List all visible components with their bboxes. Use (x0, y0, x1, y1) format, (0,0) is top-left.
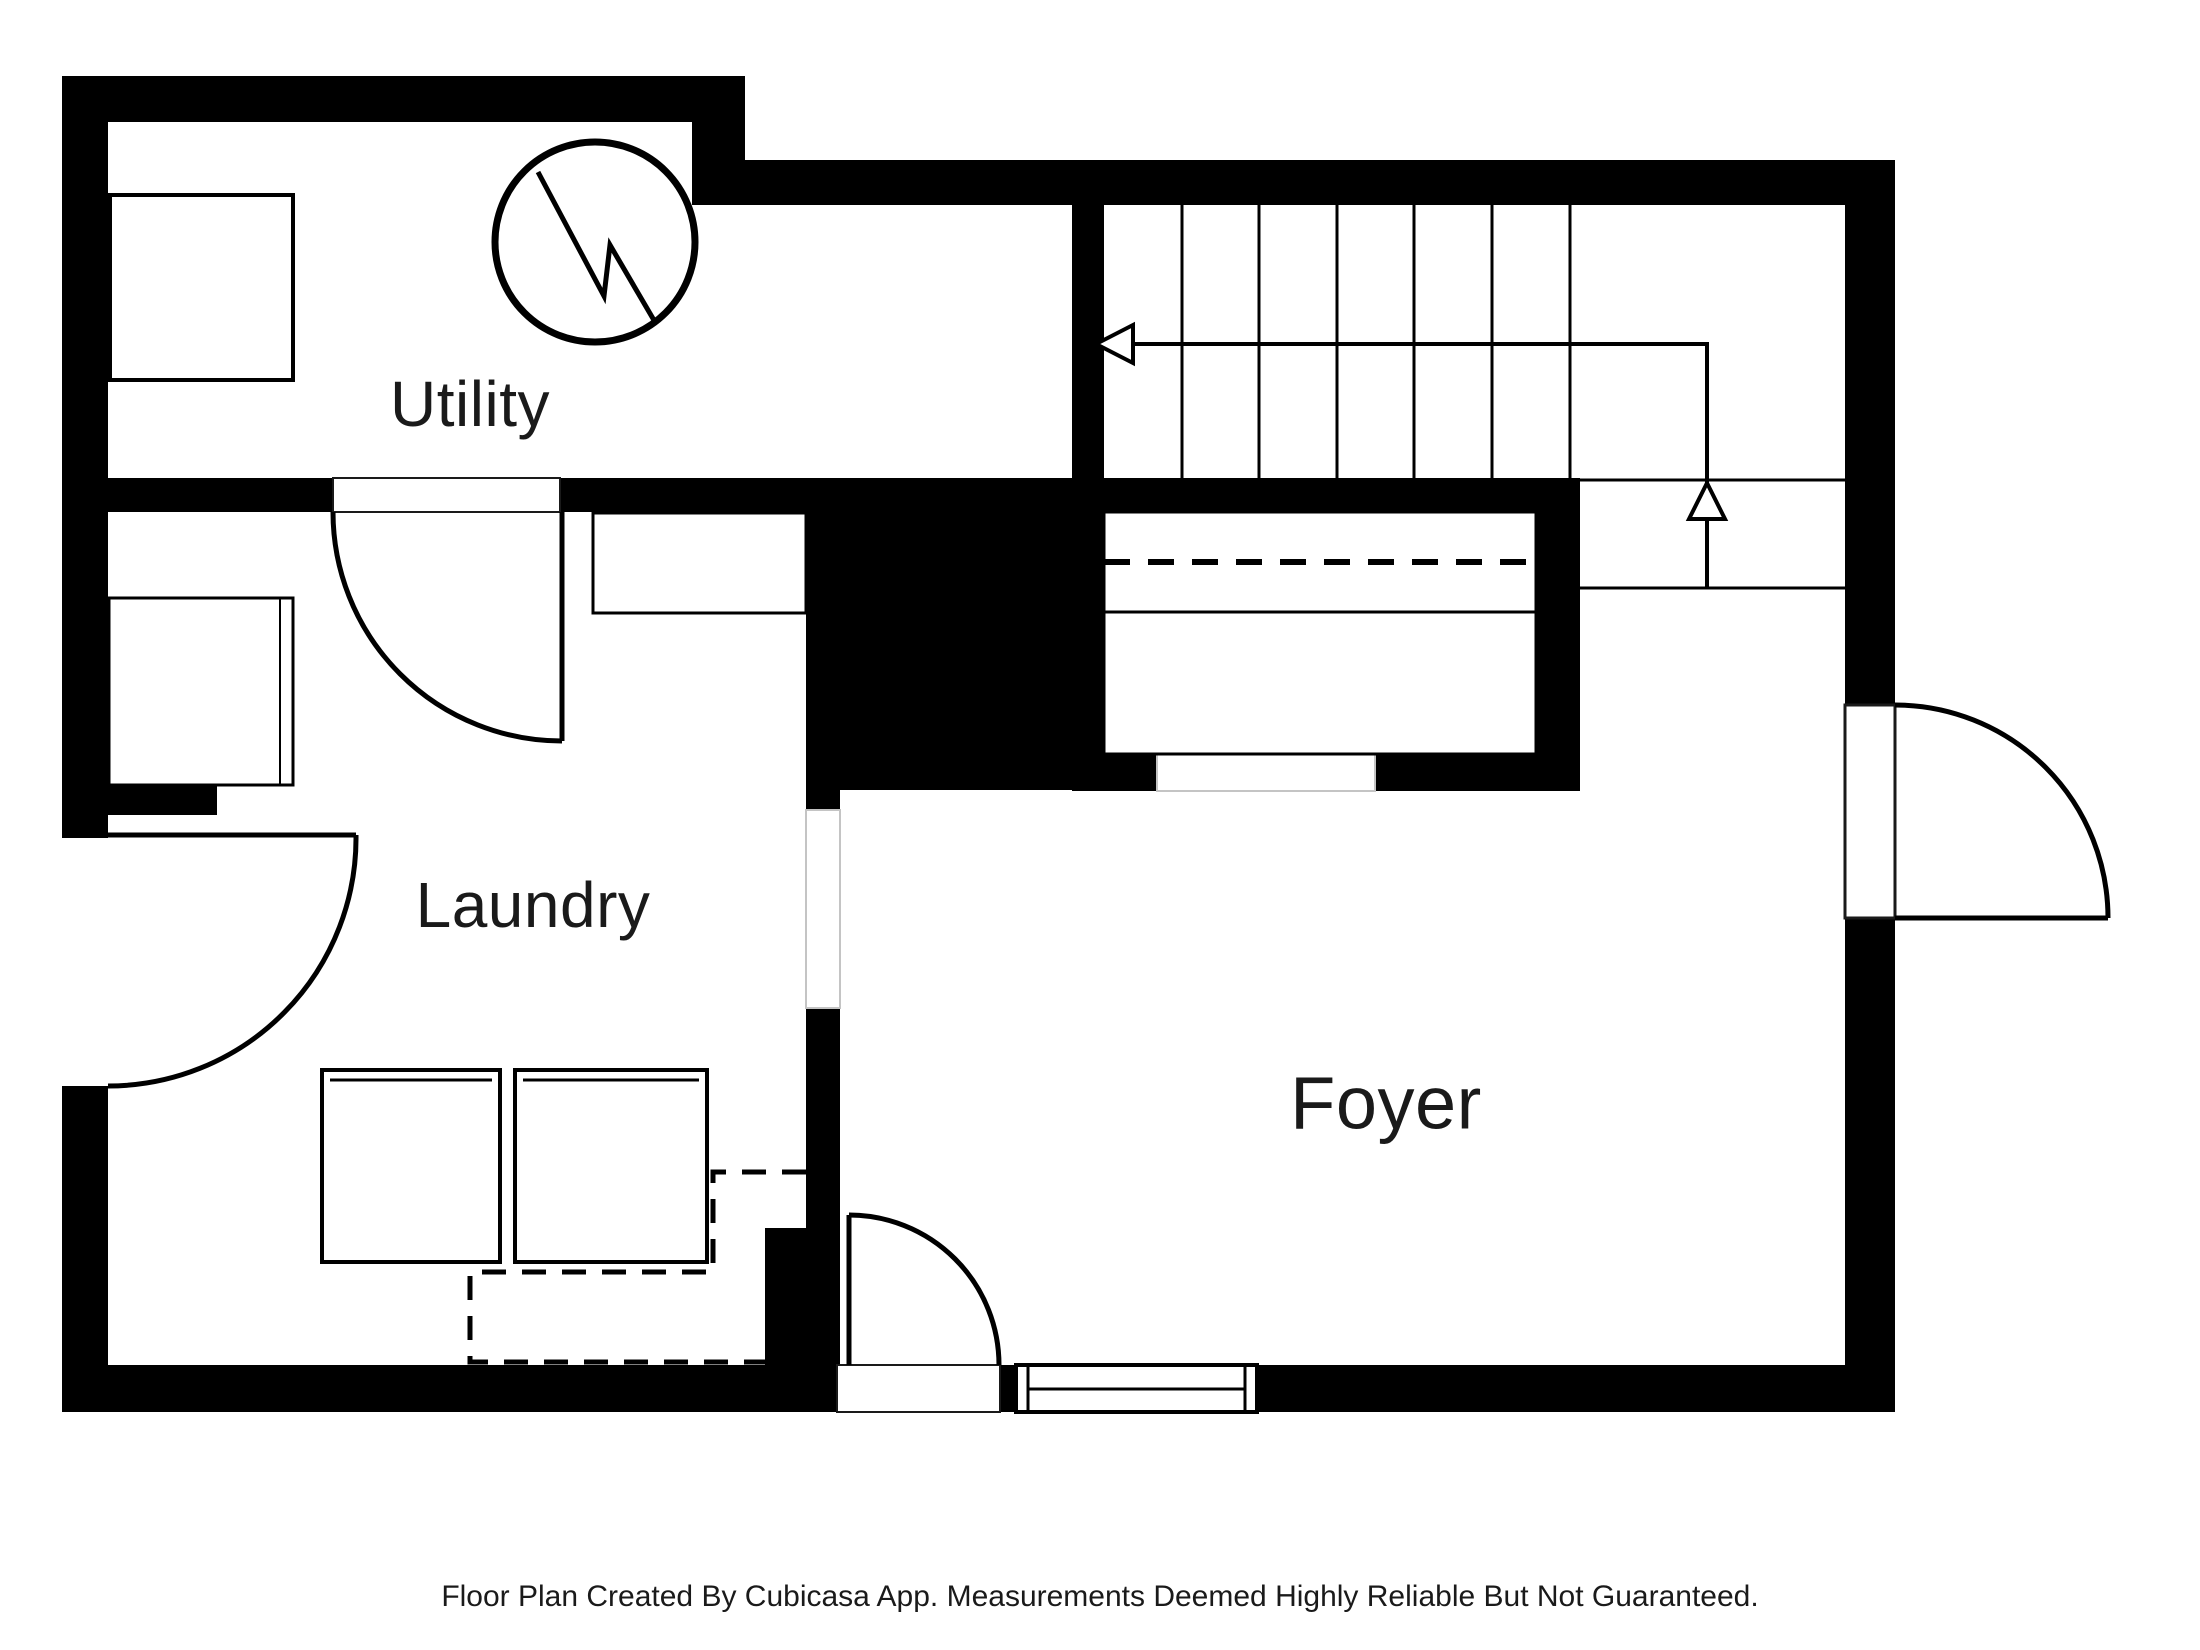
closet-opening (1157, 754, 1375, 791)
wall-bottom-left (62, 1365, 837, 1412)
laundry-cubby (593, 513, 806, 613)
door-leaf (1845, 705, 1895, 918)
wall-hall-stairs (1072, 205, 1104, 512)
door-swing-arc (108, 835, 356, 1086)
door-swing-arc (849, 1215, 999, 1365)
front-door-opening (837, 1365, 1000, 1412)
floor-plan: Utility Laundry Foyer Floor Plan Created… (0, 0, 2200, 1650)
wall-left-upper (62, 76, 108, 838)
laundry-door-opening (62, 838, 108, 1086)
door-swing-arc (1895, 705, 2108, 918)
dryer-outline (515, 1070, 707, 1262)
wall-stairs-bottom (1072, 478, 1580, 512)
floor-plan-drawing (0, 0, 2200, 1650)
laundry-counter (109, 598, 293, 785)
closet-lower-band (1104, 612, 1536, 754)
electrical-panel-circle (495, 142, 695, 342)
window-icon (1016, 1365, 1257, 1412)
wall-utility-laundry-right (560, 478, 806, 512)
laundry-foyer-passthrough (806, 810, 840, 1008)
wall-right-lower (1845, 918, 1895, 1412)
washer-icon (322, 1070, 500, 1262)
electrical-panel-icon (495, 142, 695, 342)
wall-top-right (692, 160, 1895, 205)
footer-disclaimer: Floor Plan Created By Cubicasa App. Meas… (441, 1580, 1758, 1614)
wall-bottom-right (1257, 1365, 1895, 1412)
utility-fixture (110, 195, 293, 380)
utility-laundry-door-icon (333, 512, 562, 741)
wall-top-left (62, 76, 745, 122)
dryer-icon (515, 1070, 707, 1262)
wall-right-upper (1845, 160, 1895, 705)
under-stair-storage (1104, 512, 1536, 754)
room-label-foyer: Foyer (1290, 1061, 1482, 1146)
wall-utility-laundry-left (62, 478, 333, 512)
wall-closet-bottom-left (1072, 754, 1157, 791)
wall-bottom-pier (1000, 1365, 1016, 1412)
wall-left-lower (62, 1086, 108, 1412)
laundry-counter-outline (109, 598, 293, 785)
washer-outline (322, 1070, 500, 1262)
wall-divider-junction (765, 1228, 840, 1365)
stair-arrow-head-up (1689, 483, 1725, 519)
wall-closet-left (1072, 512, 1104, 791)
laundry-entry-door-icon (108, 835, 356, 1086)
wall-closet-right (1536, 512, 1580, 791)
foyer-front-door-icon (849, 1215, 999, 1365)
room-label-laundry: Laundry (416, 868, 651, 942)
room-label-utility: Utility (390, 367, 550, 441)
door-swing-arc (333, 512, 562, 741)
lightning-bolt-glyph (538, 172, 655, 322)
wall-closet-bottom-right (1375, 754, 1580, 791)
foyer-exterior-door-icon (1845, 705, 2108, 918)
wall-core-mass (806, 478, 1104, 790)
utility-door-frame (333, 478, 560, 512)
